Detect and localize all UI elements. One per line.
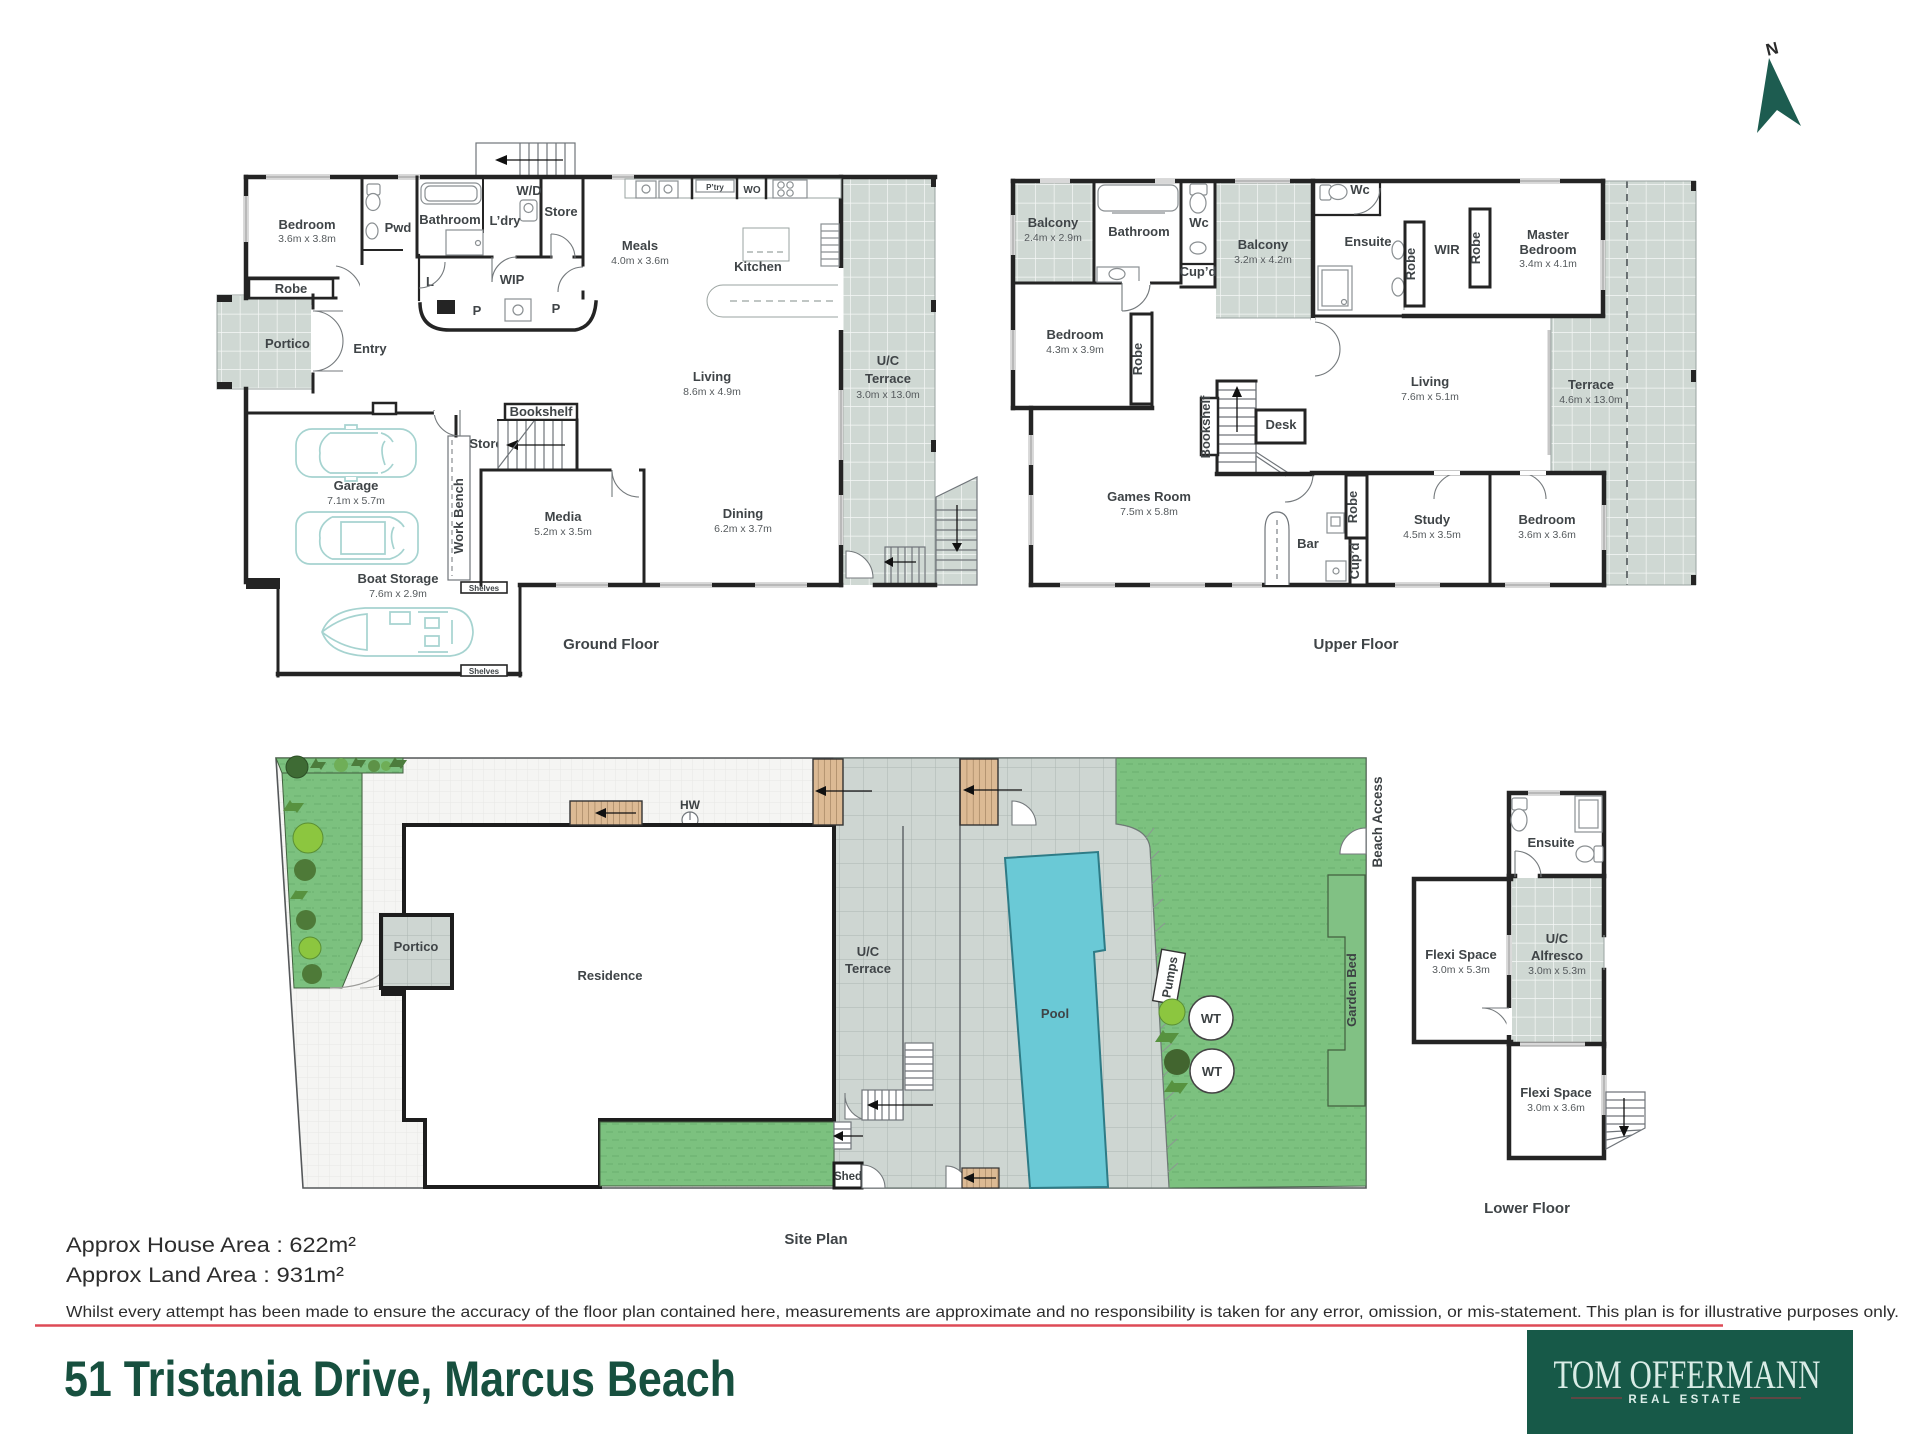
svg-text:U/C: U/C: [1546, 931, 1569, 946]
svg-text:Robe: Robe: [275, 281, 308, 296]
svg-text:Dining: Dining: [723, 506, 763, 521]
svg-text:Bookshelf: Bookshelf: [510, 404, 574, 419]
svg-text:Balcony: Balcony: [1028, 215, 1079, 230]
svg-text:Entry: Entry: [353, 341, 387, 356]
svg-text:Ensuite: Ensuite: [1528, 835, 1575, 850]
svg-text:REAL ESTATE: REAL ESTATE: [1628, 1394, 1743, 1406]
svg-text:P: P: [473, 303, 482, 318]
svg-text:Bedroom: Bedroom: [1518, 512, 1575, 527]
svg-text:Ground Floor: Ground Floor: [563, 636, 659, 653]
svg-text:3.4m x 4.1m: 3.4m x 4.1m: [1519, 258, 1577, 270]
svg-text:Bedroom: Bedroom: [278, 217, 335, 232]
svg-text:Whilst every attempt has been: Whilst every attempt has been made to en…: [66, 1304, 1899, 1321]
svg-text:Alfresco: Alfresco: [1531, 948, 1583, 963]
svg-text:HW: HW: [680, 798, 701, 812]
svg-text:Boat Storage: Boat Storage: [358, 571, 439, 586]
svg-text:Living: Living: [1411, 374, 1449, 389]
svg-text:Pool: Pool: [1041, 1006, 1069, 1021]
svg-text:Bar: Bar: [1297, 536, 1319, 551]
svg-text:WIP: WIP: [500, 272, 525, 287]
svg-text:Media: Media: [545, 509, 583, 524]
svg-text:Living: Living: [693, 369, 731, 384]
svg-text:Master: Master: [1527, 227, 1569, 242]
svg-text:3.0m x 5.3m: 3.0m x 5.3m: [1528, 965, 1586, 977]
svg-text:Portico: Portico: [394, 939, 439, 954]
svg-text:WT: WT: [1202, 1064, 1222, 1079]
svg-text:WT: WT: [1201, 1011, 1221, 1026]
svg-text:L’dry: L’dry: [489, 213, 521, 228]
svg-text:WIR: WIR: [1434, 242, 1460, 257]
svg-text:Shelves: Shelves: [469, 667, 500, 676]
svg-text:4.0m x 3.6m: 4.0m x 3.6m: [611, 255, 669, 267]
svg-text:P’try: P’try: [706, 183, 724, 192]
svg-text:Store: Store: [544, 204, 577, 219]
svg-text:Residence: Residence: [577, 968, 642, 983]
svg-text:Shed: Shed: [834, 1171, 862, 1183]
svg-text:Bedroom: Bedroom: [1046, 327, 1103, 342]
svg-text:4.5m x 3.5m: 4.5m x 3.5m: [1403, 529, 1461, 541]
svg-text:Beach Access: Beach Access: [1370, 776, 1385, 867]
svg-text:Desk: Desk: [1265, 417, 1297, 432]
svg-text:P: P: [552, 301, 561, 316]
svg-text:3.0m x 5.3m: 3.0m x 5.3m: [1432, 964, 1490, 976]
svg-text:Bedroom: Bedroom: [1519, 242, 1576, 257]
svg-text:TOM OFFERMANN: TOM OFFERMANN: [1554, 1352, 1821, 1397]
svg-text:WO: WO: [743, 185, 760, 196]
svg-text:2.4m x 2.9m: 2.4m x 2.9m: [1024, 232, 1082, 244]
svg-text:3.0m x 3.6m: 3.0m x 3.6m: [1527, 1102, 1585, 1114]
svg-text:Flexi Space: Flexi Space: [1520, 1085, 1592, 1100]
svg-text:3.6m x 3.6m: 3.6m x 3.6m: [1518, 529, 1576, 541]
svg-text:Pwd: Pwd: [385, 220, 412, 235]
svg-text:7.6m x 5.1m: 7.6m x 5.1m: [1401, 391, 1459, 403]
svg-text:Kitchen: Kitchen: [734, 259, 782, 274]
svg-text:7.1m x 5.7m: 7.1m x 5.7m: [327, 495, 385, 507]
svg-text:Wc: Wc: [1350, 182, 1370, 197]
svg-text:51 Tristania Drive, Marcus Bea: 51 Tristania Drive, Marcus Beach: [64, 1351, 736, 1407]
svg-text:Garden Bed: Garden Bed: [1344, 953, 1359, 1027]
svg-text:3.0m x 13.0m: 3.0m x 13.0m: [856, 389, 920, 401]
svg-text:U/C: U/C: [877, 353, 900, 368]
svg-text:8.6m x 4.9m: 8.6m x 4.9m: [683, 386, 741, 398]
svg-text:Balcony: Balcony: [1238, 237, 1289, 252]
svg-text:Wc: Wc: [1189, 215, 1209, 230]
svg-text:U/C: U/C: [857, 944, 880, 959]
svg-text:Shelves: Shelves: [469, 584, 500, 593]
svg-text:Flexi Space: Flexi Space: [1425, 947, 1497, 962]
svg-text:3.2m x 4.2m: 3.2m x 4.2m: [1234, 254, 1292, 266]
svg-text:Terrace: Terrace: [865, 371, 911, 386]
svg-text:7.6m x 2.9m: 7.6m x 2.9m: [369, 588, 427, 600]
svg-text:Lower Floor: Lower Floor: [1484, 1200, 1570, 1217]
svg-text:Cup’d: Cup’d: [1347, 543, 1362, 580]
svg-text:Study: Study: [1414, 512, 1451, 527]
svg-text:3.6m x 3.8m: 3.6m x 3.8m: [278, 233, 336, 245]
svg-text:Ensuite: Ensuite: [1345, 234, 1392, 249]
svg-text:6.2m x 3.7m: 6.2m x 3.7m: [714, 523, 772, 535]
svg-text:Approx House Area : 622m²: Approx House Area : 622m²: [66, 1233, 356, 1257]
svg-text:Robe: Robe: [1468, 232, 1483, 265]
svg-text:Bookshelf: Bookshelf: [1198, 395, 1213, 459]
svg-text:Upper Floor: Upper Floor: [1314, 636, 1399, 653]
svg-text:Robe: Robe: [1403, 248, 1418, 281]
svg-text:4.3m x 3.9m: 4.3m x 3.9m: [1046, 344, 1104, 356]
svg-text:Meals: Meals: [622, 238, 658, 253]
svg-text:Terrace: Terrace: [1568, 377, 1614, 392]
svg-text:Bathroom: Bathroom: [419, 212, 480, 227]
svg-text:W/D: W/D: [516, 183, 541, 198]
svg-text:4.6m x 13.0m: 4.6m x 13.0m: [1559, 394, 1623, 406]
svg-text:Games Room: Games Room: [1107, 489, 1191, 504]
svg-text:Terrace: Terrace: [845, 961, 891, 976]
svg-text:5.2m x 3.5m: 5.2m x 3.5m: [534, 526, 592, 538]
svg-text:Bathroom: Bathroom: [1108, 224, 1169, 239]
svg-text:Site Plan: Site Plan: [784, 1231, 847, 1248]
svg-text:Portico: Portico: [265, 336, 310, 351]
svg-text:Robe: Robe: [1345, 491, 1360, 524]
svg-text:Work Bench: Work Bench: [451, 478, 466, 554]
svg-text:Approx Land Area : 931m²: Approx Land Area : 931m²: [66, 1263, 344, 1287]
svg-text:Robe: Robe: [1130, 343, 1145, 376]
svg-text:Cup’d: Cup’d: [1180, 264, 1217, 279]
svg-text:7.5m x 5.8m: 7.5m x 5.8m: [1120, 506, 1178, 518]
